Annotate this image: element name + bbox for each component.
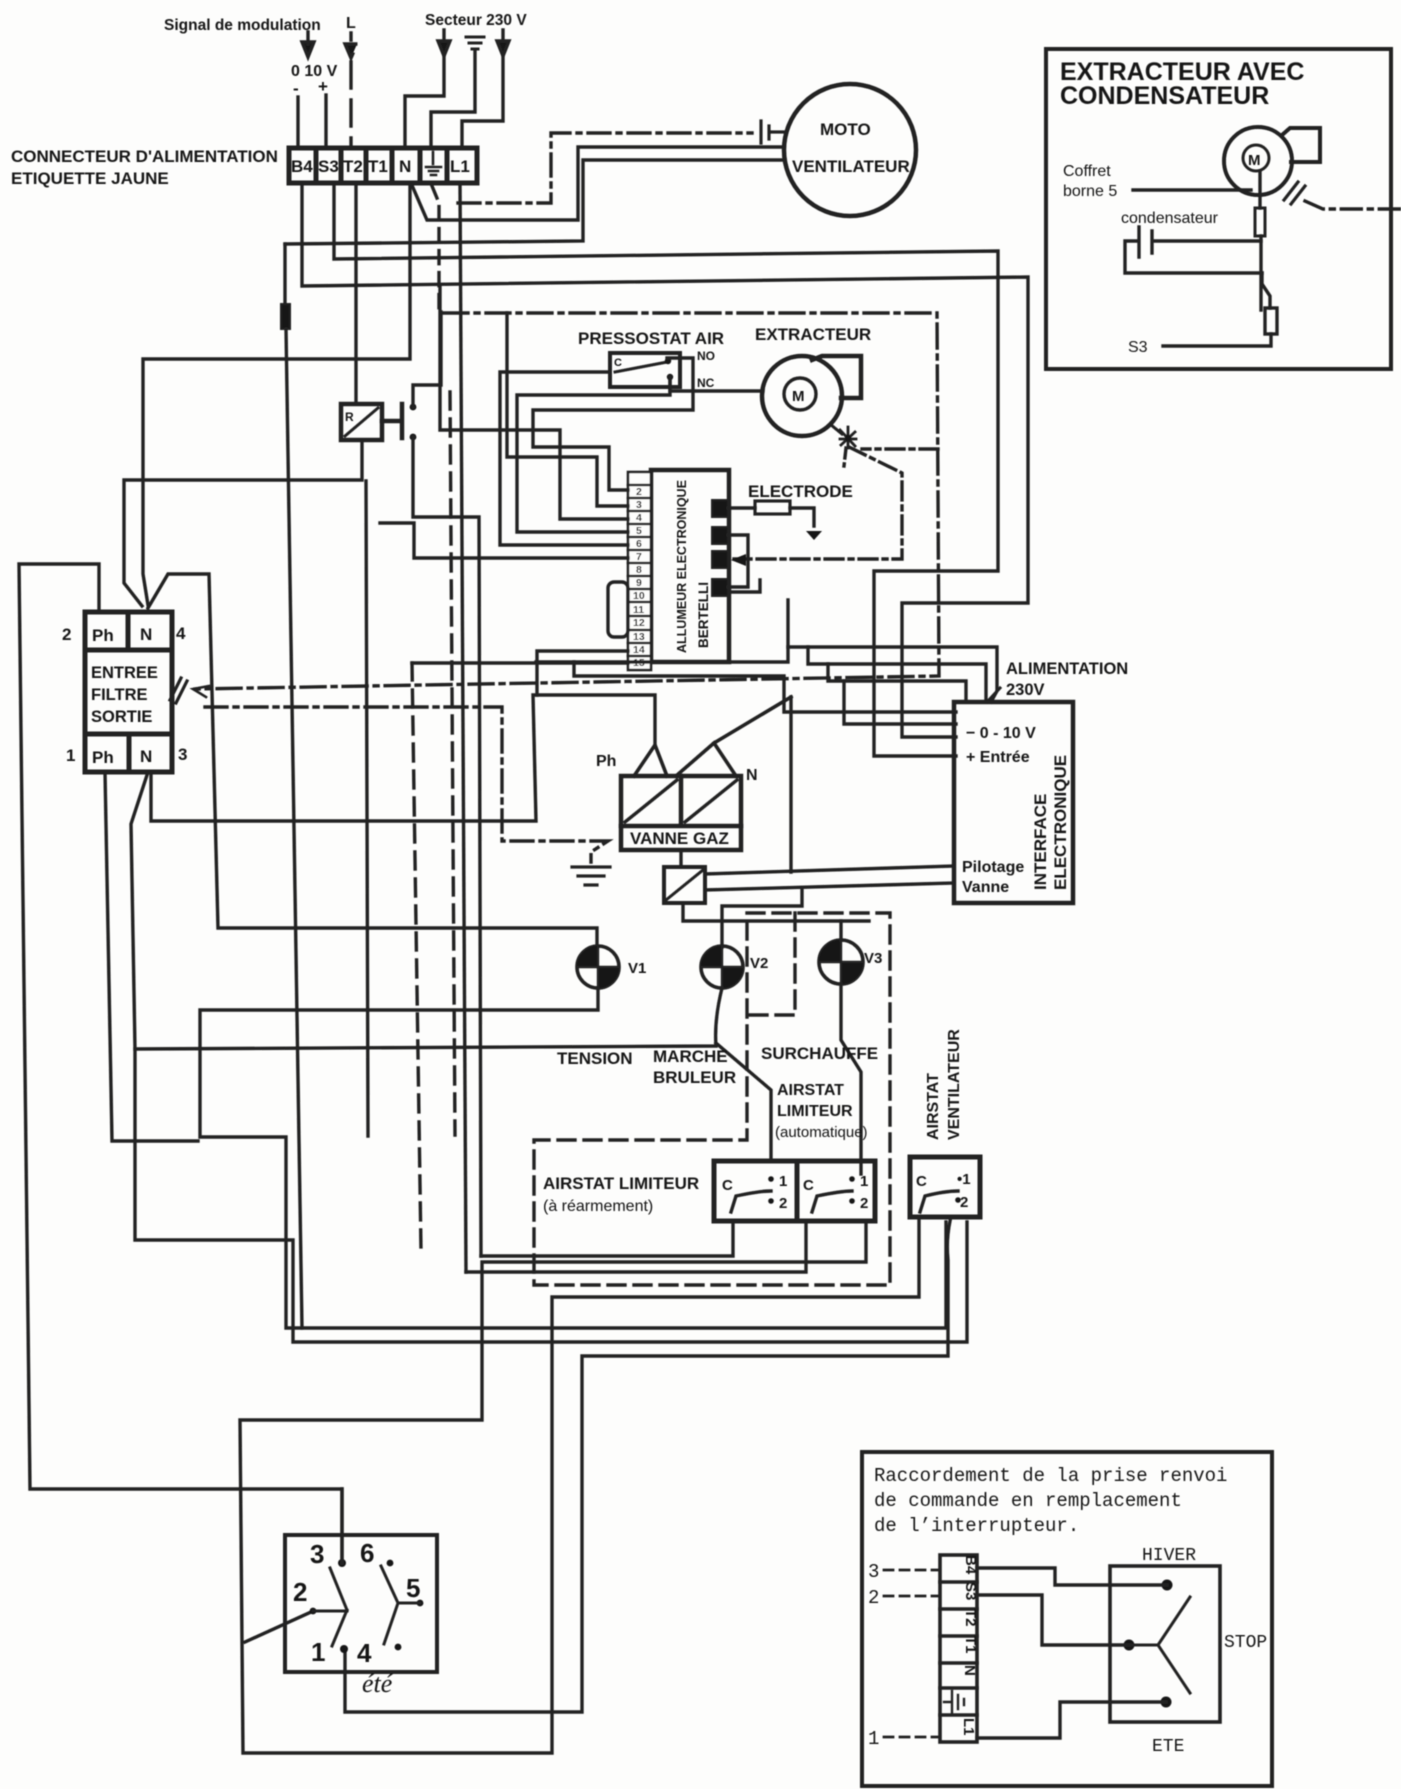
svg-text:J7: J7 <box>715 532 727 543</box>
svg-text:2: 2 <box>868 1587 879 1609</box>
svg-text:2: 2 <box>779 1195 787 1212</box>
svg-text:N: N <box>399 157 411 176</box>
svg-text:N: N <box>140 625 152 644</box>
svg-text:13: 13 <box>633 631 645 643</box>
svg-text:2: 2 <box>860 1195 868 1212</box>
svg-text:Ph: Ph <box>92 748 114 767</box>
svg-text:C: C <box>614 357 622 369</box>
svg-text:NC: NC <box>697 376 715 390</box>
svg-text:été: été <box>362 1669 394 1698</box>
svg-text:1: 1 <box>66 746 75 765</box>
svg-text:V1: V1 <box>628 960 646 977</box>
svg-text:S3: S3 <box>1128 339 1148 356</box>
svg-text:de commande en remplacement: de commande en remplacement <box>874 1490 1182 1512</box>
svg-text:T1: T1 <box>962 1636 979 1654</box>
svg-text:STOP: STOP <box>1224 1633 1267 1653</box>
svg-text:TENSION: TENSION <box>557 1049 633 1068</box>
svg-text:AIRSTAT: AIRSTAT <box>777 1082 844 1099</box>
svg-text:NO: NO <box>697 349 715 363</box>
svg-text:L1: L1 <box>960 1718 977 1736</box>
svg-text:Ph: Ph <box>92 626 114 645</box>
svg-text:3: 3 <box>178 745 187 764</box>
svg-text:C: C <box>803 1177 814 1194</box>
svg-text:V3: V3 <box>864 950 882 967</box>
svg-text:8: 8 <box>636 564 642 576</box>
svg-text:5: 5 <box>636 525 642 537</box>
svg-text:+: + <box>318 77 328 96</box>
svg-text:Signal de modulation: Signal de modulation <box>164 17 321 34</box>
svg-text:4: 4 <box>636 512 642 524</box>
svg-text:BERTELLI: BERTELLI <box>696 582 711 648</box>
svg-text:3: 3 <box>310 1539 324 1569</box>
svg-text:VANNE GAZ: VANNE GAZ <box>630 829 729 848</box>
svg-text:14: 14 <box>633 644 645 656</box>
svg-text:MARCHE: MARCHE <box>653 1047 728 1066</box>
svg-text:C: C <box>722 1177 733 1194</box>
svg-text:10: 10 <box>633 590 645 602</box>
svg-text:2: 2 <box>636 486 642 498</box>
svg-text:•1: •1 <box>957 1171 971 1188</box>
svg-text:T2: T2 <box>343 157 363 176</box>
svg-text:12: 12 <box>633 617 645 629</box>
svg-text:B4: B4 <box>962 1555 979 1575</box>
svg-text:C: C <box>916 1173 927 1190</box>
svg-text:Pilotage: Pilotage <box>962 859 1024 876</box>
svg-text:condensateur: condensateur <box>1121 210 1219 227</box>
svg-text:VENTILATEUR: VENTILATEUR <box>946 1029 963 1140</box>
svg-text:Raccordement de la prise renvo: Raccordement de la prise renvoi <box>874 1465 1227 1487</box>
svg-text:Secteur 230 V: Secteur 230 V <box>425 12 527 29</box>
svg-text:L: L <box>346 15 356 32</box>
svg-text:ELECTRONIQUE: ELECTRONIQUE <box>1051 755 1070 890</box>
svg-text:V2: V2 <box>750 955 768 972</box>
svg-text:VENTILATEUR: VENTILATEUR <box>792 157 910 176</box>
svg-text:7: 7 <box>636 551 642 563</box>
svg-text:AIRSTAT LIMITEUR: AIRSTAT LIMITEUR <box>543 1174 699 1193</box>
svg-text:SURCHAUFFE: SURCHAUFFE <box>761 1044 878 1063</box>
svg-text:S3: S3 <box>318 157 339 176</box>
svg-text:de l’interrupteur.: de l’interrupteur. <box>874 1515 1079 1537</box>
svg-text:0 10 V: 0 10 V <box>291 63 338 80</box>
svg-text:J6: J6 <box>715 556 727 567</box>
svg-text:Vanne: Vanne <box>962 879 1009 896</box>
svg-text:-: - <box>293 79 299 98</box>
svg-text:INTERFACE: INTERFACE <box>1031 794 1050 890</box>
svg-text:(à réarmement): (à réarmement) <box>543 1198 653 1215</box>
svg-text:HIVER: HIVER <box>1142 1546 1196 1566</box>
svg-text:ALIMENTATION: ALIMENTATION <box>1006 660 1128 678</box>
svg-text:6: 6 <box>636 538 642 550</box>
svg-text:ETIQUETTE JAUNE: ETIQUETTE JAUNE <box>11 169 169 188</box>
svg-text:2: 2 <box>960 1194 968 1211</box>
svg-text:J8: J8 <box>715 505 727 516</box>
svg-text:− 0 - 10 V: − 0 - 10 V <box>966 725 1036 742</box>
svg-text:ALLUMEUR ELECTRONIQUE: ALLUMEUR ELECTRONIQUE <box>675 480 689 653</box>
svg-text:Ph: Ph <box>596 753 616 770</box>
svg-text:Coffret: Coffret <box>1063 163 1111 180</box>
svg-text:LIMITEUR: LIMITEUR <box>777 1103 853 1120</box>
svg-text:M: M <box>1248 152 1261 169</box>
svg-text:BRULEUR: BRULEUR <box>653 1068 736 1087</box>
svg-text:N: N <box>140 747 152 766</box>
svg-text:N: N <box>746 767 758 784</box>
svg-text:CONDENSATEUR: CONDENSATEUR <box>1060 82 1269 110</box>
svg-text:S3: S3 <box>962 1582 979 1600</box>
svg-text:N: N <box>961 1665 978 1676</box>
svg-text:3: 3 <box>868 1561 879 1583</box>
svg-text:1: 1 <box>860 1173 868 1190</box>
svg-text:1: 1 <box>779 1173 787 1190</box>
svg-text:6: 6 <box>360 1538 374 1568</box>
svg-text:3: 3 <box>636 499 642 511</box>
svg-text:PRESSOSTAT AIR: PRESSOSTAT AIR <box>578 329 724 348</box>
svg-text:9: 9 <box>636 577 642 589</box>
svg-text:MOTO: MOTO <box>820 120 871 139</box>
svg-text:ELECTRODE: ELECTRODE <box>748 482 853 501</box>
svg-text:SORTIE: SORTIE <box>91 708 152 726</box>
svg-text:5: 5 <box>406 1573 420 1603</box>
svg-text:(automatique): (automatique) <box>775 1124 868 1141</box>
svg-text:borne 5: borne 5 <box>1063 183 1117 200</box>
svg-text:4: 4 <box>176 624 186 643</box>
svg-text:AIRSTAT: AIRSTAT <box>925 1073 942 1140</box>
svg-text:+ Entrée: + Entrée <box>966 749 1030 766</box>
svg-text:T1: T1 <box>368 157 388 176</box>
svg-text:CONNECTEUR D'ALIMENTATION: CONNECTEUR D'ALIMENTATION <box>11 147 278 166</box>
svg-text:ETE: ETE <box>1152 1737 1184 1757</box>
svg-text:EXTRACTEUR: EXTRACTEUR <box>755 325 871 344</box>
svg-text:11: 11 <box>633 604 644 616</box>
svg-text:M: M <box>792 388 805 405</box>
svg-text:L1: L1 <box>450 157 470 176</box>
svg-text:2: 2 <box>62 625 71 644</box>
svg-text:2: 2 <box>293 1577 307 1607</box>
svg-text:4: 4 <box>357 1638 372 1668</box>
svg-text:B4: B4 <box>291 157 313 176</box>
svg-text:230V: 230V <box>1006 681 1045 699</box>
svg-text:T2: T2 <box>962 1609 979 1627</box>
svg-text:ENTREE: ENTREE <box>91 664 158 682</box>
svg-text:R: R <box>345 410 354 424</box>
svg-text:1: 1 <box>868 1728 879 1750</box>
svg-text:J5: J5 <box>715 584 727 595</box>
svg-text:1: 1 <box>311 1637 325 1667</box>
svg-text:FILTRE: FILTRE <box>91 686 148 704</box>
